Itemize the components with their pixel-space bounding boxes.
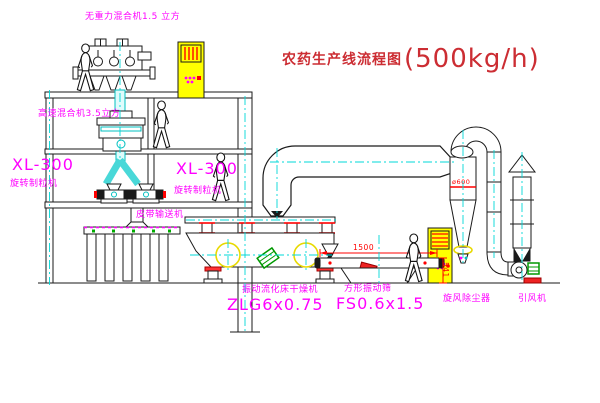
title-capacity: (500kg/h)	[404, 44, 540, 74]
fluid-bed-dryer	[185, 217, 335, 283]
label-granulator-left: 旋转制粒机	[10, 180, 58, 190]
label-fan: 引风机	[518, 295, 547, 305]
fan-motor	[528, 263, 539, 274]
dryer-ports	[199, 223, 335, 233]
label-belt-conveyor: 皮带输送机	[136, 211, 184, 221]
label-high-speed-mixer: 高速混合机3.5立方	[38, 110, 120, 120]
dimension-cyclone-diameter: ø600	[452, 178, 470, 186]
label-cyclone: 旋风除尘器	[443, 295, 491, 305]
label-granulator-right: 旋转制粒机	[174, 187, 222, 197]
dryer-feet	[204, 267, 334, 283]
induced-draft-fan	[508, 262, 541, 283]
exhaust-duct	[263, 146, 452, 218]
title-text: 农药生产线流程图	[282, 49, 402, 69]
label-dryer-model: ZLG6x0.75	[227, 296, 324, 314]
diagram-title: 农药生产线流程图 (500kg/h)	[282, 44, 540, 74]
label-sieve-model: FS0.6x1.5	[336, 295, 424, 313]
label-gravity-mixer: 无重力混合机1.5 立方	[85, 13, 180, 23]
label-xl300-left: XL-300	[12, 156, 74, 174]
granulator-left	[94, 184, 134, 203]
downcomer-duct	[487, 152, 508, 275]
control-cabinet-top	[178, 42, 204, 98]
label-xl300-right: XL-300	[176, 160, 238, 178]
dimension-sieve-length: 1500	[353, 243, 374, 252]
dimension-sieve-height: 541	[441, 262, 450, 278]
granulator-right	[129, 184, 166, 203]
vibrating-sieve	[315, 244, 447, 283]
flow-diagram-canvas: 农药生产线流程图 (500kg/h) 无重力混合机1.5 立方 高速混合机3.5…	[0, 0, 600, 403]
person-figure-2	[153, 101, 169, 148]
